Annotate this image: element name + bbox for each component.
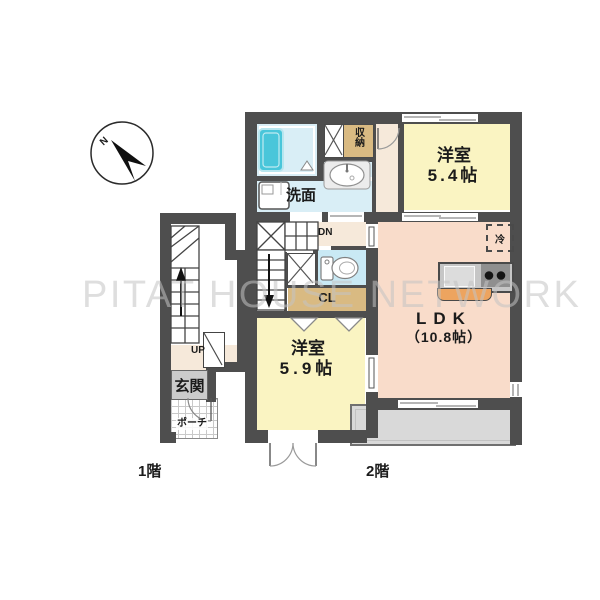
- wall-bath-bottom: [257, 176, 324, 181]
- dn-label: DN: [318, 227, 332, 239]
- floor2-label: 2階: [366, 463, 389, 480]
- entrance-area: 玄関: [171, 370, 208, 400]
- bedroom54-label: 洋室 5.4帖: [398, 146, 510, 185]
- refrigerator-label: 冷: [495, 231, 505, 246]
- watermark-text: PITAT HOUSE NETWORK: [82, 274, 581, 317]
- toilet-door: [318, 246, 331, 250]
- bedroom54-size: 5.4帖: [398, 166, 510, 186]
- bedroom59-name: 洋室: [251, 339, 365, 359]
- balcony-floor: [355, 409, 511, 441]
- entrance-label: 玄関: [174, 375, 204, 396]
- french-doors: [270, 443, 316, 466]
- door-hall-ldk: [366, 224, 378, 248]
- washroom-label: 洗面: [286, 187, 316, 204]
- sliding-door-bedroom54-ldk: [402, 213, 478, 221]
- french-door-opening: [268, 430, 318, 443]
- up-label: UP: [171, 345, 225, 357]
- storage-label: 収納: [352, 127, 364, 147]
- refrigerator-space: 冷: [486, 224, 514, 252]
- floor-plan: 収納 冷 玄関: [0, 0, 600, 600]
- bedroom59-size: 5.9帖: [251, 359, 365, 379]
- compass-north-label: N: [98, 135, 111, 148]
- wall-top-2f: [245, 112, 522, 124]
- stair-opening: [290, 212, 322, 222]
- closet-door-x: [324, 124, 345, 158]
- compass-circle: [91, 122, 153, 184]
- wall-bottom-1f: [160, 432, 176, 443]
- bedroom59-label: 洋室 5.9帖: [251, 339, 365, 378]
- porch-label: ポーチ: [176, 418, 208, 430]
- window-right: [510, 382, 522, 397]
- wall-left-1f: [160, 213, 171, 443]
- bedroom54-name: 洋室: [398, 146, 510, 166]
- wall-bath-right: [317, 124, 324, 176]
- floor1-label: 1階: [138, 463, 161, 480]
- bathroom-floor: [257, 124, 317, 176]
- storage-closet: 収納: [343, 124, 374, 158]
- washroom-floor-upper: [324, 162, 372, 177]
- window-top: [402, 114, 478, 122]
- ldk-size: （10.8帖）: [378, 329, 510, 345]
- north-arrow-icon: [111, 140, 146, 181]
- hallway-upper: [376, 124, 398, 212]
- washroom-door: [328, 212, 364, 222]
- door-bedroom59-ldk: [366, 355, 378, 392]
- window-balcony: [398, 400, 478, 408]
- compass: [91, 122, 153, 184]
